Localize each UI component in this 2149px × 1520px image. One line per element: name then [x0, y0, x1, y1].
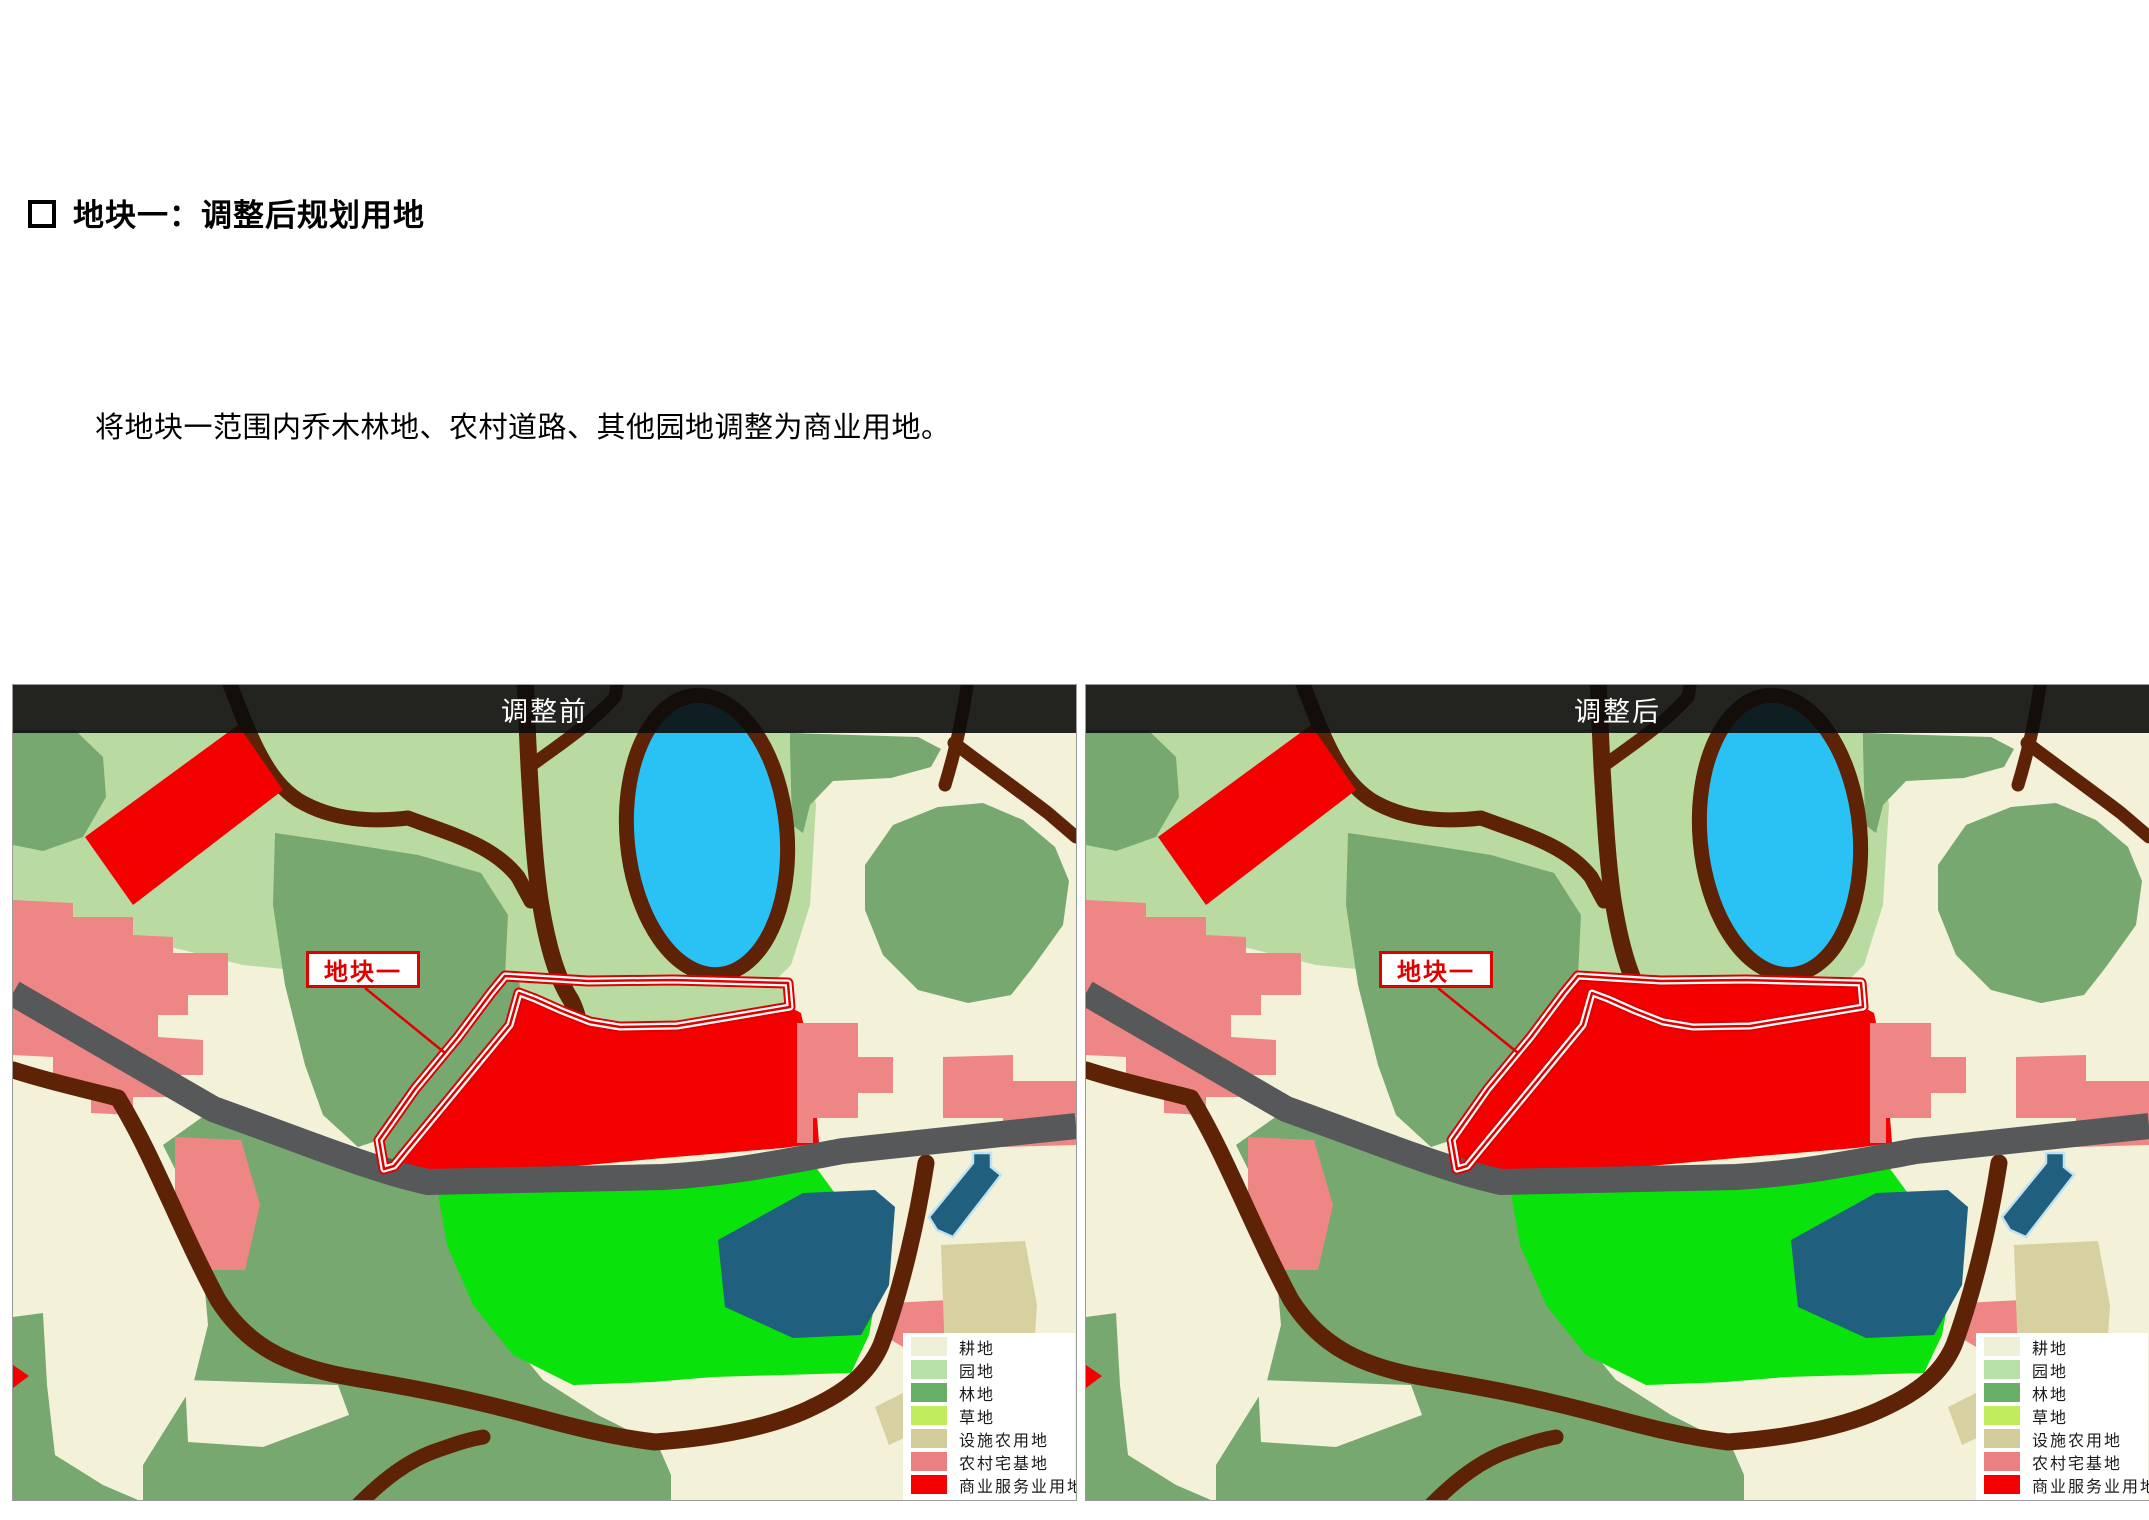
- legend-item: 商业服务业用地: [1976, 1473, 2148, 1496]
- legend-swatch: [911, 1452, 947, 1471]
- legend-item: 设施农用地: [1976, 1427, 2148, 1450]
- legend-label: 林地: [959, 1381, 995, 1405]
- legend-swatch: [1984, 1452, 2020, 1471]
- legend-item: 林地: [903, 1381, 1075, 1404]
- legend-swatch: [1984, 1360, 2020, 1379]
- legend-swatch: [1984, 1383, 2020, 1402]
- legend-swatch: [1984, 1406, 2020, 1425]
- legend-swatch: [1984, 1475, 2020, 1494]
- legend-label: 商业服务业用地: [959, 1473, 1076, 1497]
- legend-after: 耕地园地林地草地设施农用地农村宅基地商业服务业用地: [1976, 1333, 2148, 1500]
- legend-item: 林地: [1976, 1381, 2148, 1404]
- legend-label: 农村宅基地: [2032, 1450, 2122, 1474]
- legend-item: 农村宅基地: [1976, 1450, 2148, 1473]
- legend-swatch: [911, 1475, 947, 1494]
- legend-label: 耕地: [959, 1335, 995, 1359]
- page-title-text: 地块一：调整后规划用地: [73, 190, 425, 235]
- legend-label: 商业服务业用地: [2032, 1473, 2149, 1497]
- legend-before: 耕地园地林地草地设施农用地农村宅基地商业服务业用地: [903, 1333, 1075, 1500]
- legend-swatch: [911, 1406, 947, 1425]
- legend-swatch: [911, 1429, 947, 1448]
- legend-item: 农村宅基地: [903, 1450, 1075, 1473]
- legend-swatch: [1984, 1429, 2020, 1448]
- legend-label: 园地: [959, 1358, 995, 1382]
- legend-item: 商业服务业用地: [903, 1473, 1075, 1496]
- legend-swatch: [911, 1337, 947, 1356]
- legend-item: 耕地: [1976, 1335, 2148, 1358]
- legend-label: 农村宅基地: [959, 1450, 1049, 1474]
- legend-label: 园地: [2032, 1358, 2068, 1382]
- legend-item: 设施农用地: [903, 1427, 1075, 1450]
- legend-label: 设施农用地: [959, 1427, 1049, 1451]
- page-title: 地块一：调整后规划用地: [28, 190, 425, 235]
- legend-item: 园地: [903, 1358, 1075, 1381]
- legend-swatch: [1984, 1337, 2020, 1356]
- legend-item: 草地: [903, 1404, 1075, 1427]
- legend-item: 园地: [1976, 1358, 2148, 1381]
- map-after: 调整后 地块一 耕地园地林地草地设施农用地农村宅基地商业服务业用地: [1086, 685, 2149, 1500]
- legend-swatch: [911, 1383, 947, 1402]
- legend-item: 草地: [1976, 1404, 2148, 1427]
- map-before: 调整前 地块一 耕地园地林地草地设施农用地农村宅基地商业服务业用地: [13, 685, 1076, 1500]
- title-bullet-icon: [28, 200, 56, 228]
- legend-item: 耕地: [903, 1335, 1075, 1358]
- legend-label: 耕地: [2032, 1335, 2068, 1359]
- map-before-header: 调整前: [13, 685, 1076, 733]
- plot-label-before: 地块一: [306, 951, 420, 988]
- body-text: 将地块一范围内乔木林地、农村道路、其他园地调整为商业用地。: [95, 404, 951, 446]
- legend-label: 草地: [959, 1404, 995, 1428]
- legend-label: 林地: [2032, 1381, 2068, 1405]
- legend-label: 设施农用地: [2032, 1427, 2122, 1451]
- plot-label-after: 地块一: [1379, 951, 1493, 988]
- legend-label: 草地: [2032, 1404, 2068, 1428]
- map-after-header: 调整后: [1086, 685, 2149, 733]
- legend-swatch: [911, 1360, 947, 1379]
